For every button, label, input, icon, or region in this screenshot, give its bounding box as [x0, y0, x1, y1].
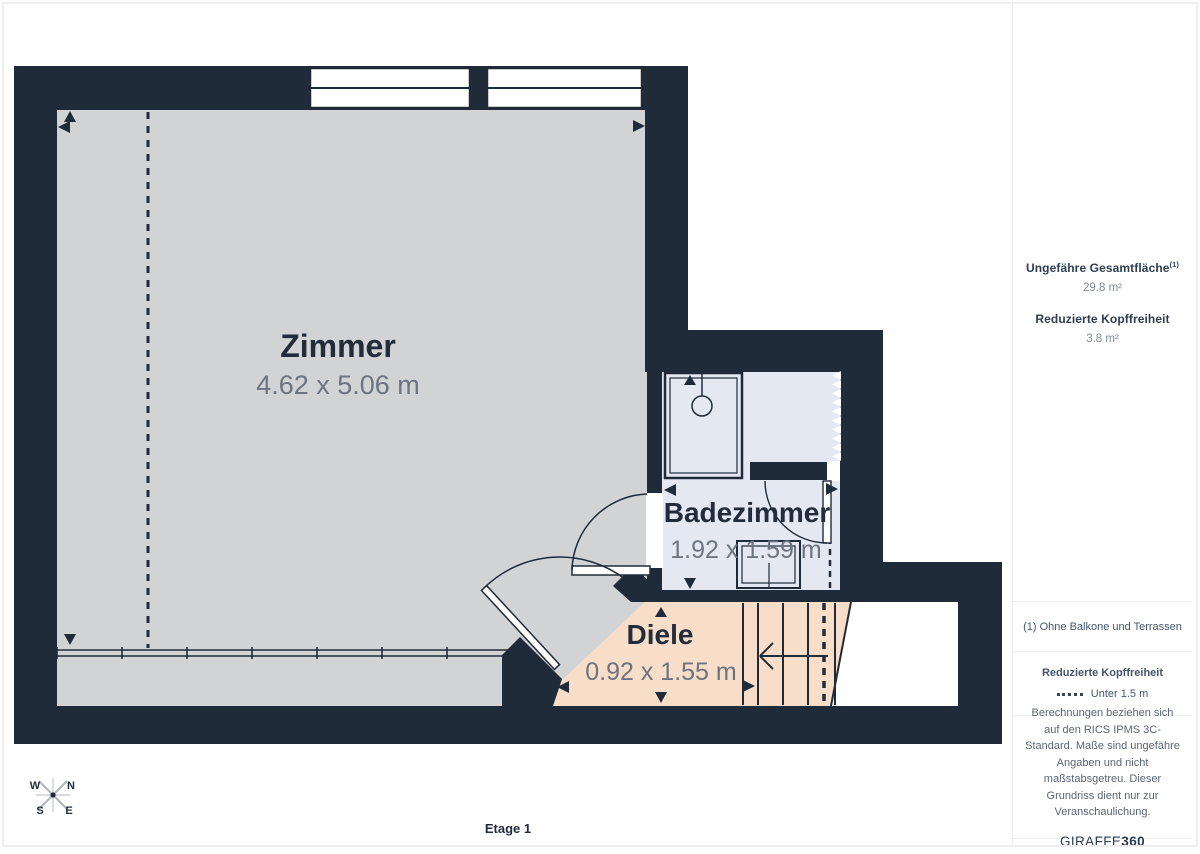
- wall-diele-top: [632, 590, 883, 602]
- compass-north: N: [67, 780, 75, 792]
- compass-icon: W N S E: [30, 778, 75, 817]
- measurements-section: Ungefähre Gesamtfläche(1) 29.8 m² Reduzi…: [1013, 3, 1192, 602]
- wall-bad-left-upper: [647, 372, 662, 493]
- zimmer-floor: [57, 110, 648, 706]
- compass-east: E: [65, 805, 72, 817]
- wall-badezimmer-top: [645, 330, 883, 372]
- room-label-badezimmer: Badezimmer: [664, 497, 831, 528]
- total-area-footnote-marker: (1): [1170, 260, 1179, 269]
- wall-stair-right: [958, 562, 1002, 744]
- reduced-headroom-label: Reduzierte Kopffreiheit: [1035, 312, 1169, 326]
- footnote-section: (1) Ohne Balkone und Terrassen: [1013, 602, 1192, 652]
- info-sidebar: Ungefähre Gesamtfläche(1) 29.8 m² Reduzi…: [1012, 3, 1192, 846]
- total-area-value: 29.8 m²: [1026, 282, 1179, 294]
- stairwell-void: [831, 602, 958, 706]
- room-dims-diele: 0.92 x 1.55 m: [585, 658, 736, 686]
- floor-plan-area: Zimmer 4.62 x 5.06 m Badezimmer 1.92 x 1…: [0, 0, 1012, 849]
- disclaimer-text: Berechnungen beziehen sich auf den RICS …: [1024, 705, 1182, 821]
- brand-name: GIRAFFE: [1060, 834, 1121, 849]
- legend-label: Reduzierte Kopffreiheit: [1042, 667, 1163, 679]
- floor-plan-svg: Zimmer 4.62 x 5.06 m Badezimmer 1.92 x 1…: [0, 0, 1012, 849]
- wall-left: [14, 66, 57, 744]
- wall-zimmer-right: [645, 66, 688, 330]
- reduced-headroom-value: 3.8 m²: [1035, 333, 1169, 345]
- legend-row: Unter 1.5 m: [1057, 688, 1148, 700]
- wall-niche-bottom: [750, 462, 827, 480]
- total-area-group: Ungefähre Gesamtfläche(1) 29.8 m²: [1026, 260, 1179, 294]
- room-label-diele: Diele: [627, 619, 694, 650]
- room-label-zimmer: Zimmer: [280, 328, 396, 364]
- compass-south: S: [36, 805, 43, 817]
- disclaimer-section: Berechnungen beziehen sich auf den RICS …: [1013, 716, 1192, 839]
- total-area-label-text: Ungefähre Gesamtfläche: [1026, 261, 1170, 275]
- door-slot-badezimmer-left: [646, 493, 663, 568]
- reduced-headroom-group: Reduzierte Kopffreiheit 3.8 m²: [1035, 312, 1169, 345]
- brand-suffix: 360: [1121, 834, 1145, 849]
- dotted-line-icon: [1057, 693, 1083, 696]
- wall-badezimmer-right: [840, 372, 883, 590]
- total-area-label: Ungefähre Gesamtfläche(1): [1026, 260, 1179, 275]
- room-dims-zimmer: 4.62 x 5.06 m: [256, 370, 420, 400]
- wall-bottom: [14, 706, 1002, 744]
- room-dims-badezimmer: 1.92 x 1.59 m: [670, 536, 821, 564]
- footnote-text: (1) Ohne Balkone und Terrassen: [1023, 621, 1182, 633]
- brand-logo: GIRAFFE360: [1060, 834, 1145, 849]
- compass-west: W: [30, 780, 41, 792]
- floor-label: Etage 1: [485, 821, 531, 836]
- legend-value: Unter 1.5 m: [1091, 688, 1148, 700]
- door-slot-badezimmer-top: [827, 461, 840, 481]
